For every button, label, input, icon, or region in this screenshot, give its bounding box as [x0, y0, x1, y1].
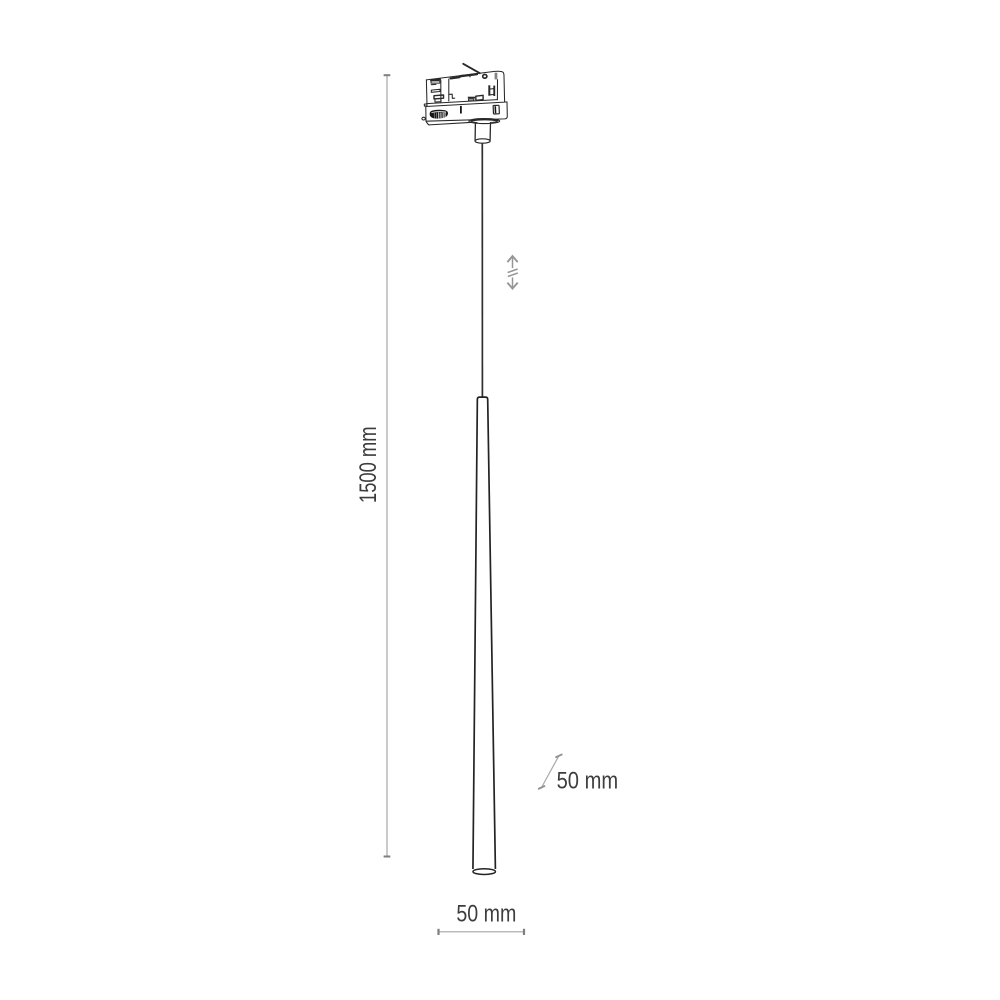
svg-text:50 mm: 50 mm: [557, 767, 619, 794]
svg-text:1500 mm: 1500 mm: [355, 427, 382, 504]
svg-text:50 mm: 50 mm: [456, 900, 516, 927]
